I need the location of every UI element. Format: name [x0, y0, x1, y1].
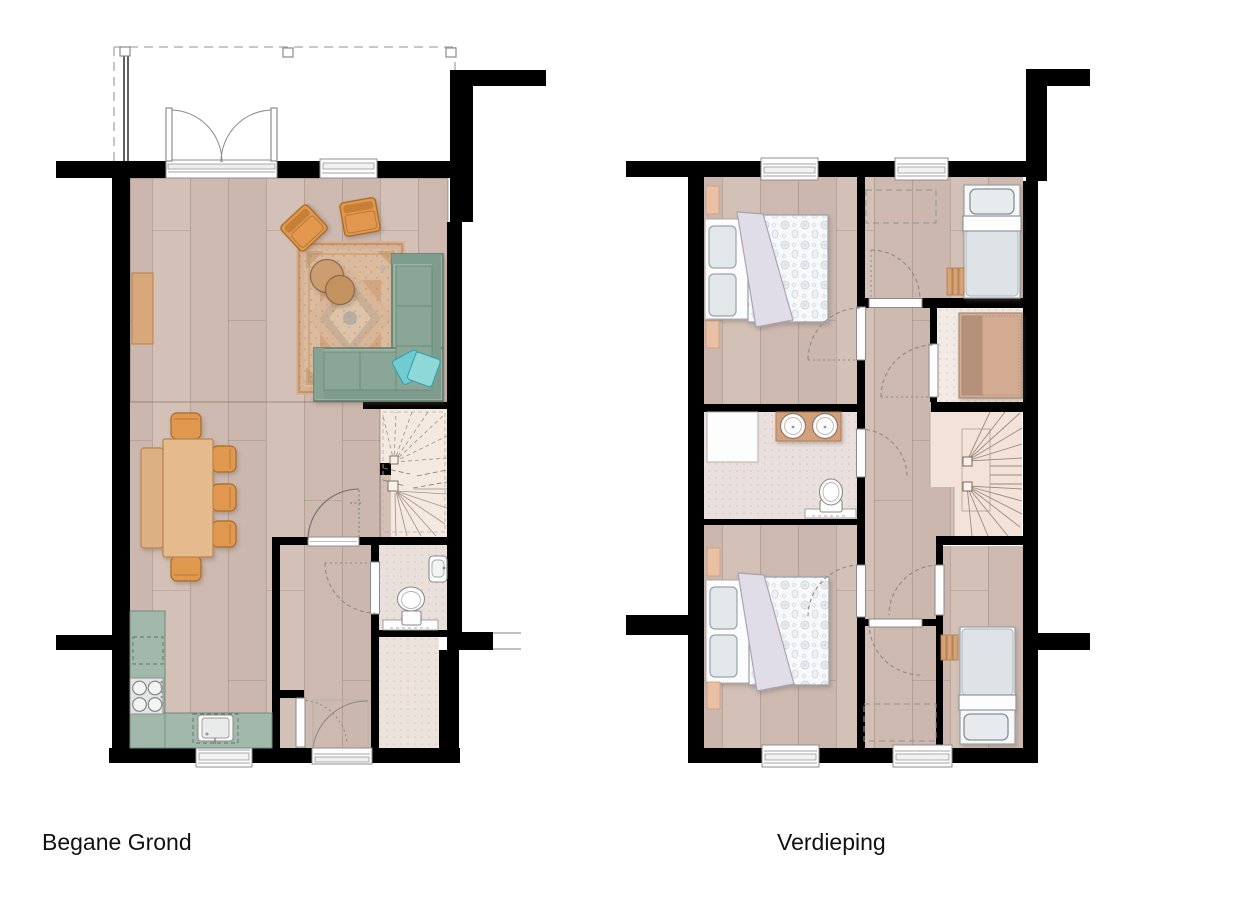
svg-text:Verdieping: Verdieping — [777, 829, 886, 855]
svg-text:Begane Grond: Begane Grond — [42, 829, 192, 855]
